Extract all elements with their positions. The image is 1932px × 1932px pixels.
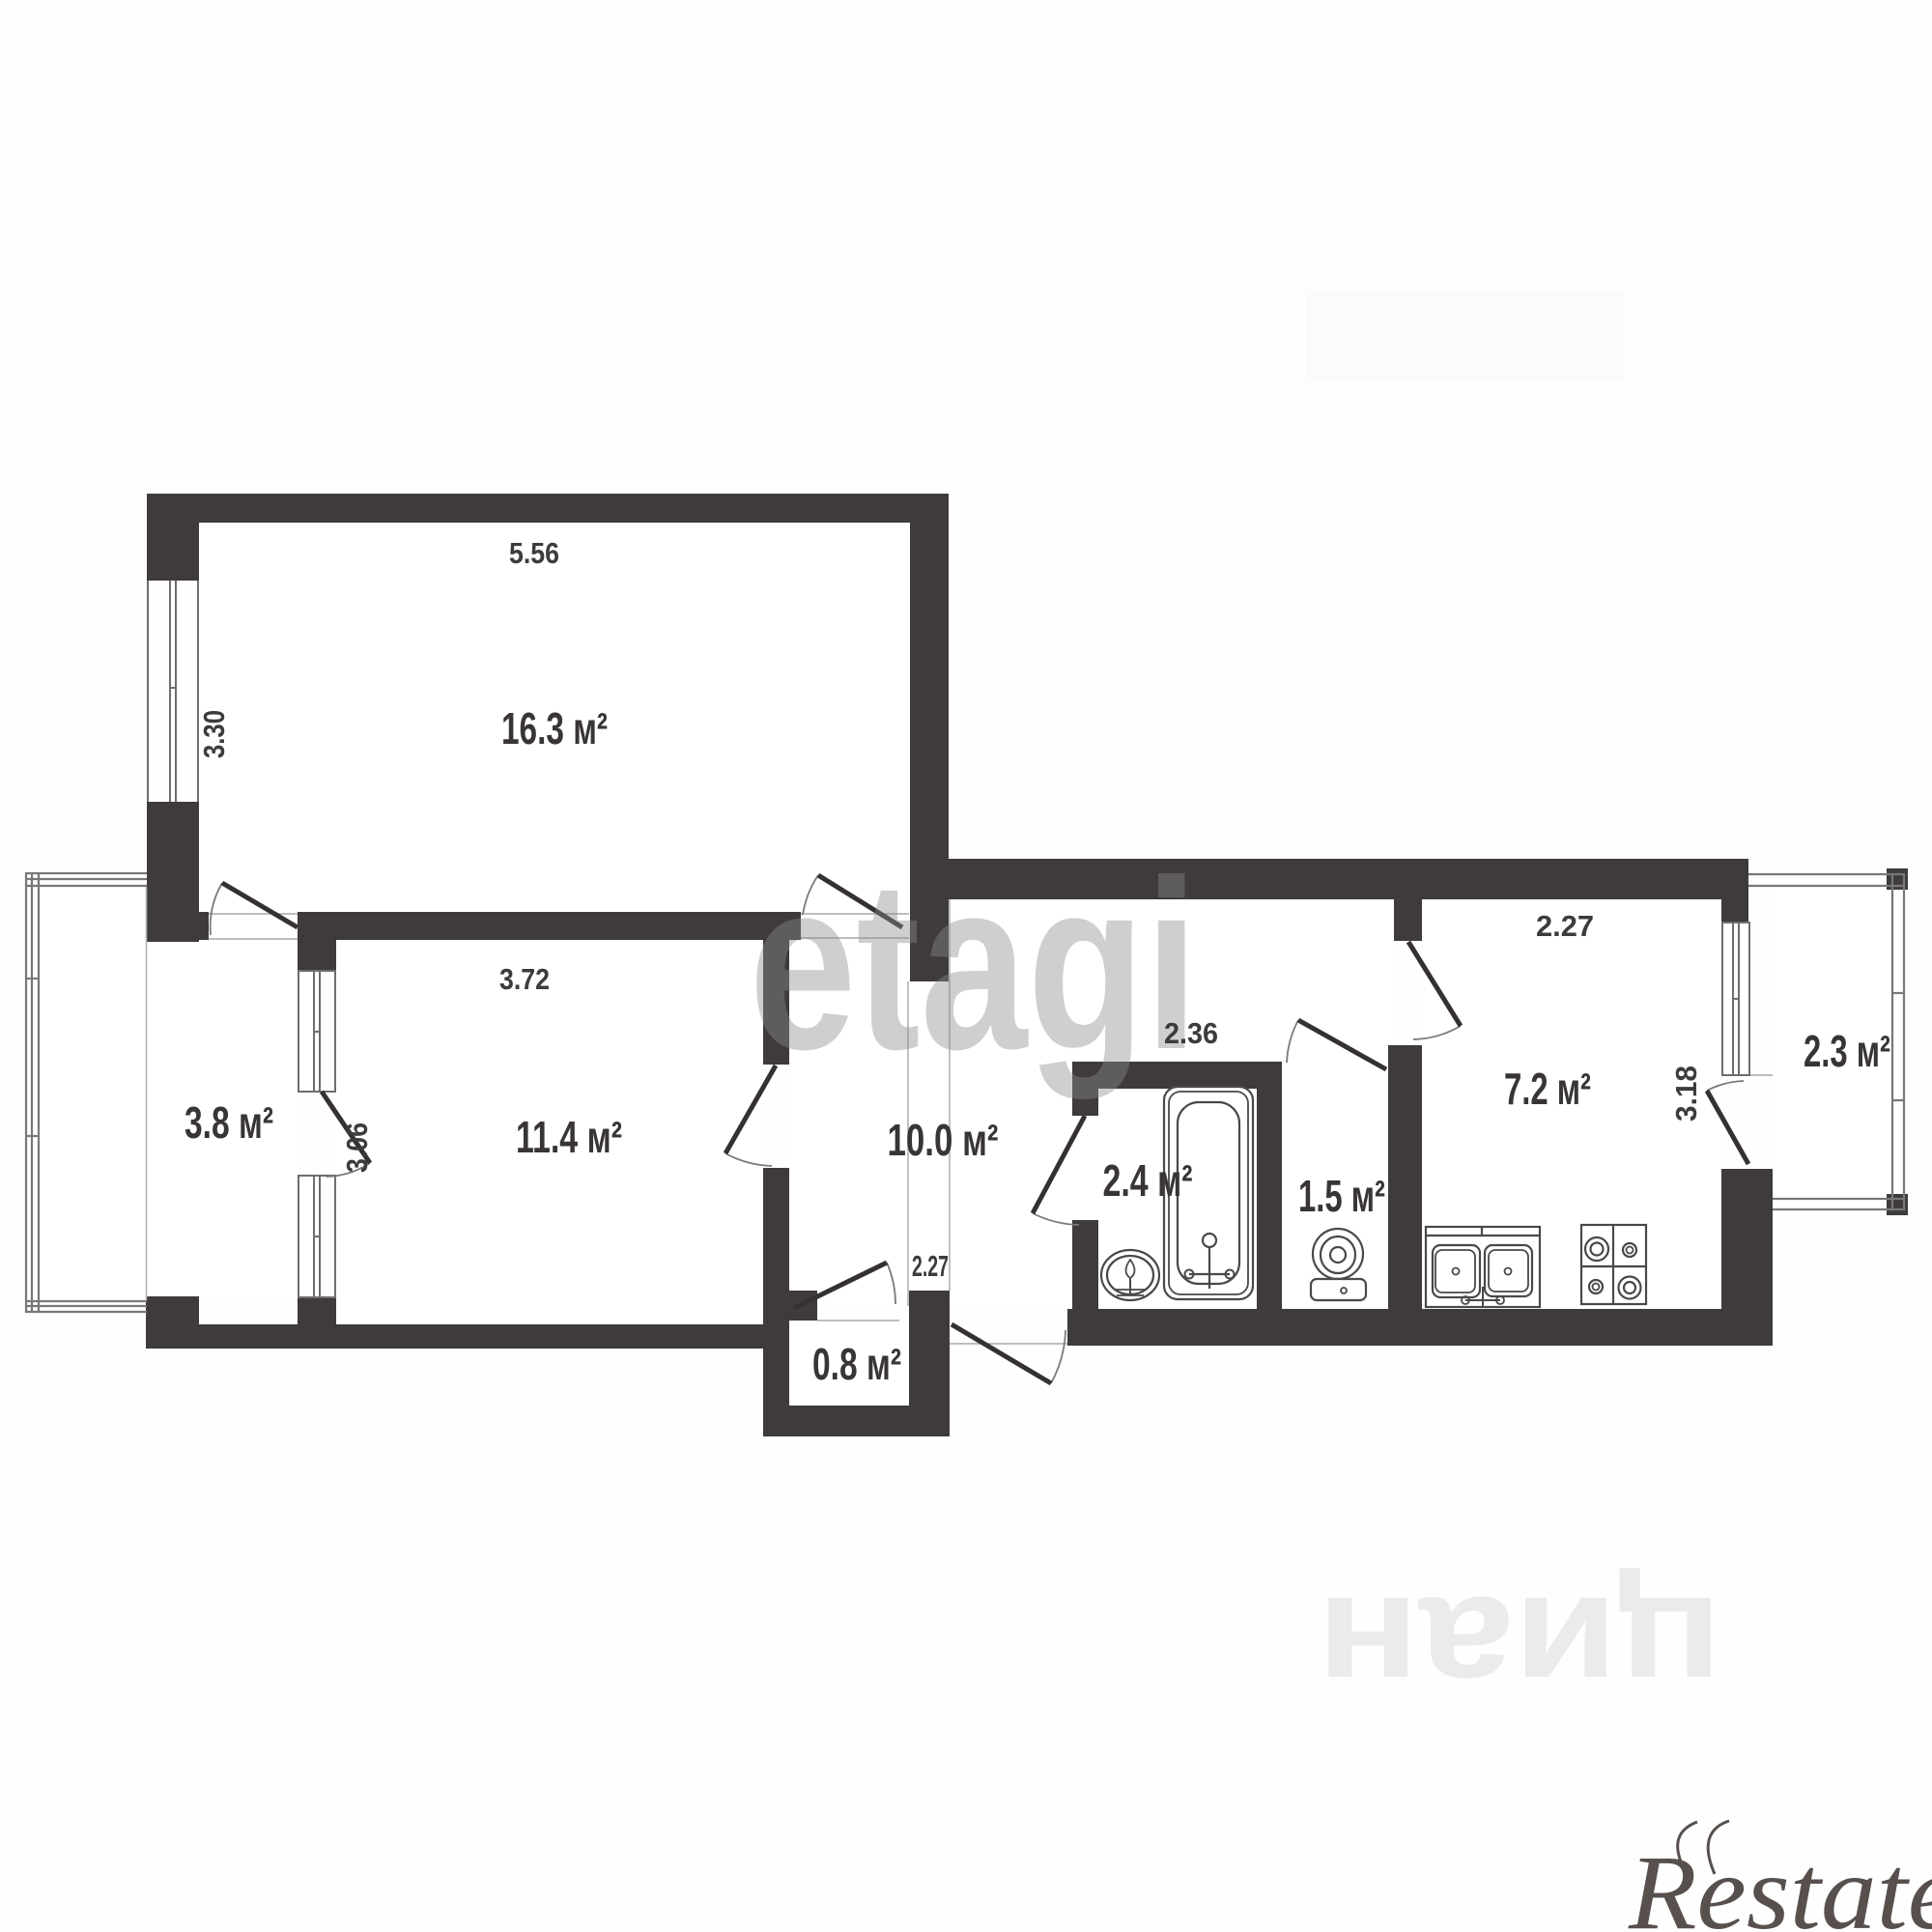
svg-text:3.30: 3.30 xyxy=(197,710,231,758)
svg-text:3.06: 3.06 xyxy=(340,1122,374,1173)
svg-text:циан: циан xyxy=(1317,1566,1722,1733)
svg-text:7.2 м²: 7.2 м² xyxy=(1504,1064,1591,1114)
svg-text:2.27: 2.27 xyxy=(1536,909,1594,943)
svg-text:5.56: 5.56 xyxy=(509,536,559,570)
svg-text:0.8 м²: 0.8 м² xyxy=(812,1339,901,1389)
svg-text:2.27: 2.27 xyxy=(912,1249,949,1283)
svg-text:10.0 м²: 10.0 м² xyxy=(888,1115,999,1165)
svg-text:3.18: 3.18 xyxy=(1669,1065,1703,1122)
svg-text:11.4 м²: 11.4 м² xyxy=(516,1112,622,1162)
svg-text:3.8 м²: 3.8 м² xyxy=(185,1097,273,1148)
svg-text:1.5 м²: 1.5 м² xyxy=(1298,1171,1385,1221)
svg-text:3.72: 3.72 xyxy=(499,962,550,996)
svg-text:2.3 м²: 2.3 м² xyxy=(1804,1026,1890,1076)
svg-text:2.36: 2.36 xyxy=(1164,1016,1218,1050)
svg-text:16.3 м²: 16.3 м² xyxy=(501,703,608,753)
svg-text:etagi: etagi xyxy=(750,830,1199,1099)
svg-text:2.4 м²: 2.4 м² xyxy=(1103,1155,1193,1206)
svg-text:Restate: Restate xyxy=(1628,1833,1932,1932)
